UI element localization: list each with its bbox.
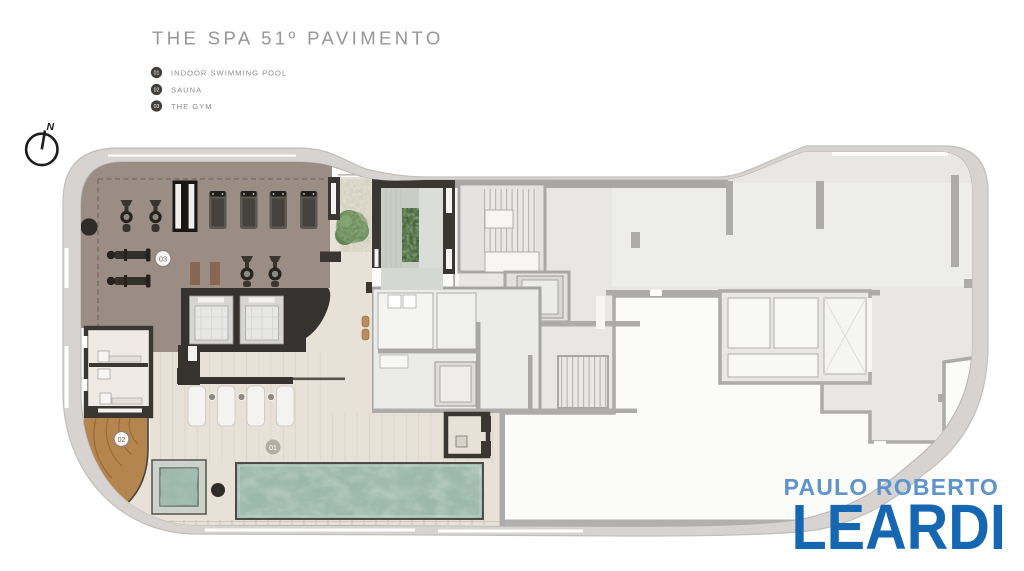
svg-text:02: 02 xyxy=(118,437,126,444)
svg-text:01: 01 xyxy=(269,445,277,452)
svg-text:THE GYM: THE GYM xyxy=(171,102,213,111)
svg-text:N: N xyxy=(47,121,55,133)
svg-text:01: 01 xyxy=(154,71,160,77)
svg-text:02: 02 xyxy=(154,88,160,94)
svg-text:03: 03 xyxy=(159,254,167,263)
svg-text:INDOOR SWIMMING POOL: INDOOR SWIMMING POOL xyxy=(171,68,287,77)
svg-text:LEARDI: LEARDI xyxy=(792,491,1006,562)
svg-text:THE SPA 51º PAVIMENTO: THE SPA 51º PAVIMENTO xyxy=(152,28,444,49)
svg-text:SAUNA: SAUNA xyxy=(171,85,202,94)
svg-text:03: 03 xyxy=(154,104,160,110)
